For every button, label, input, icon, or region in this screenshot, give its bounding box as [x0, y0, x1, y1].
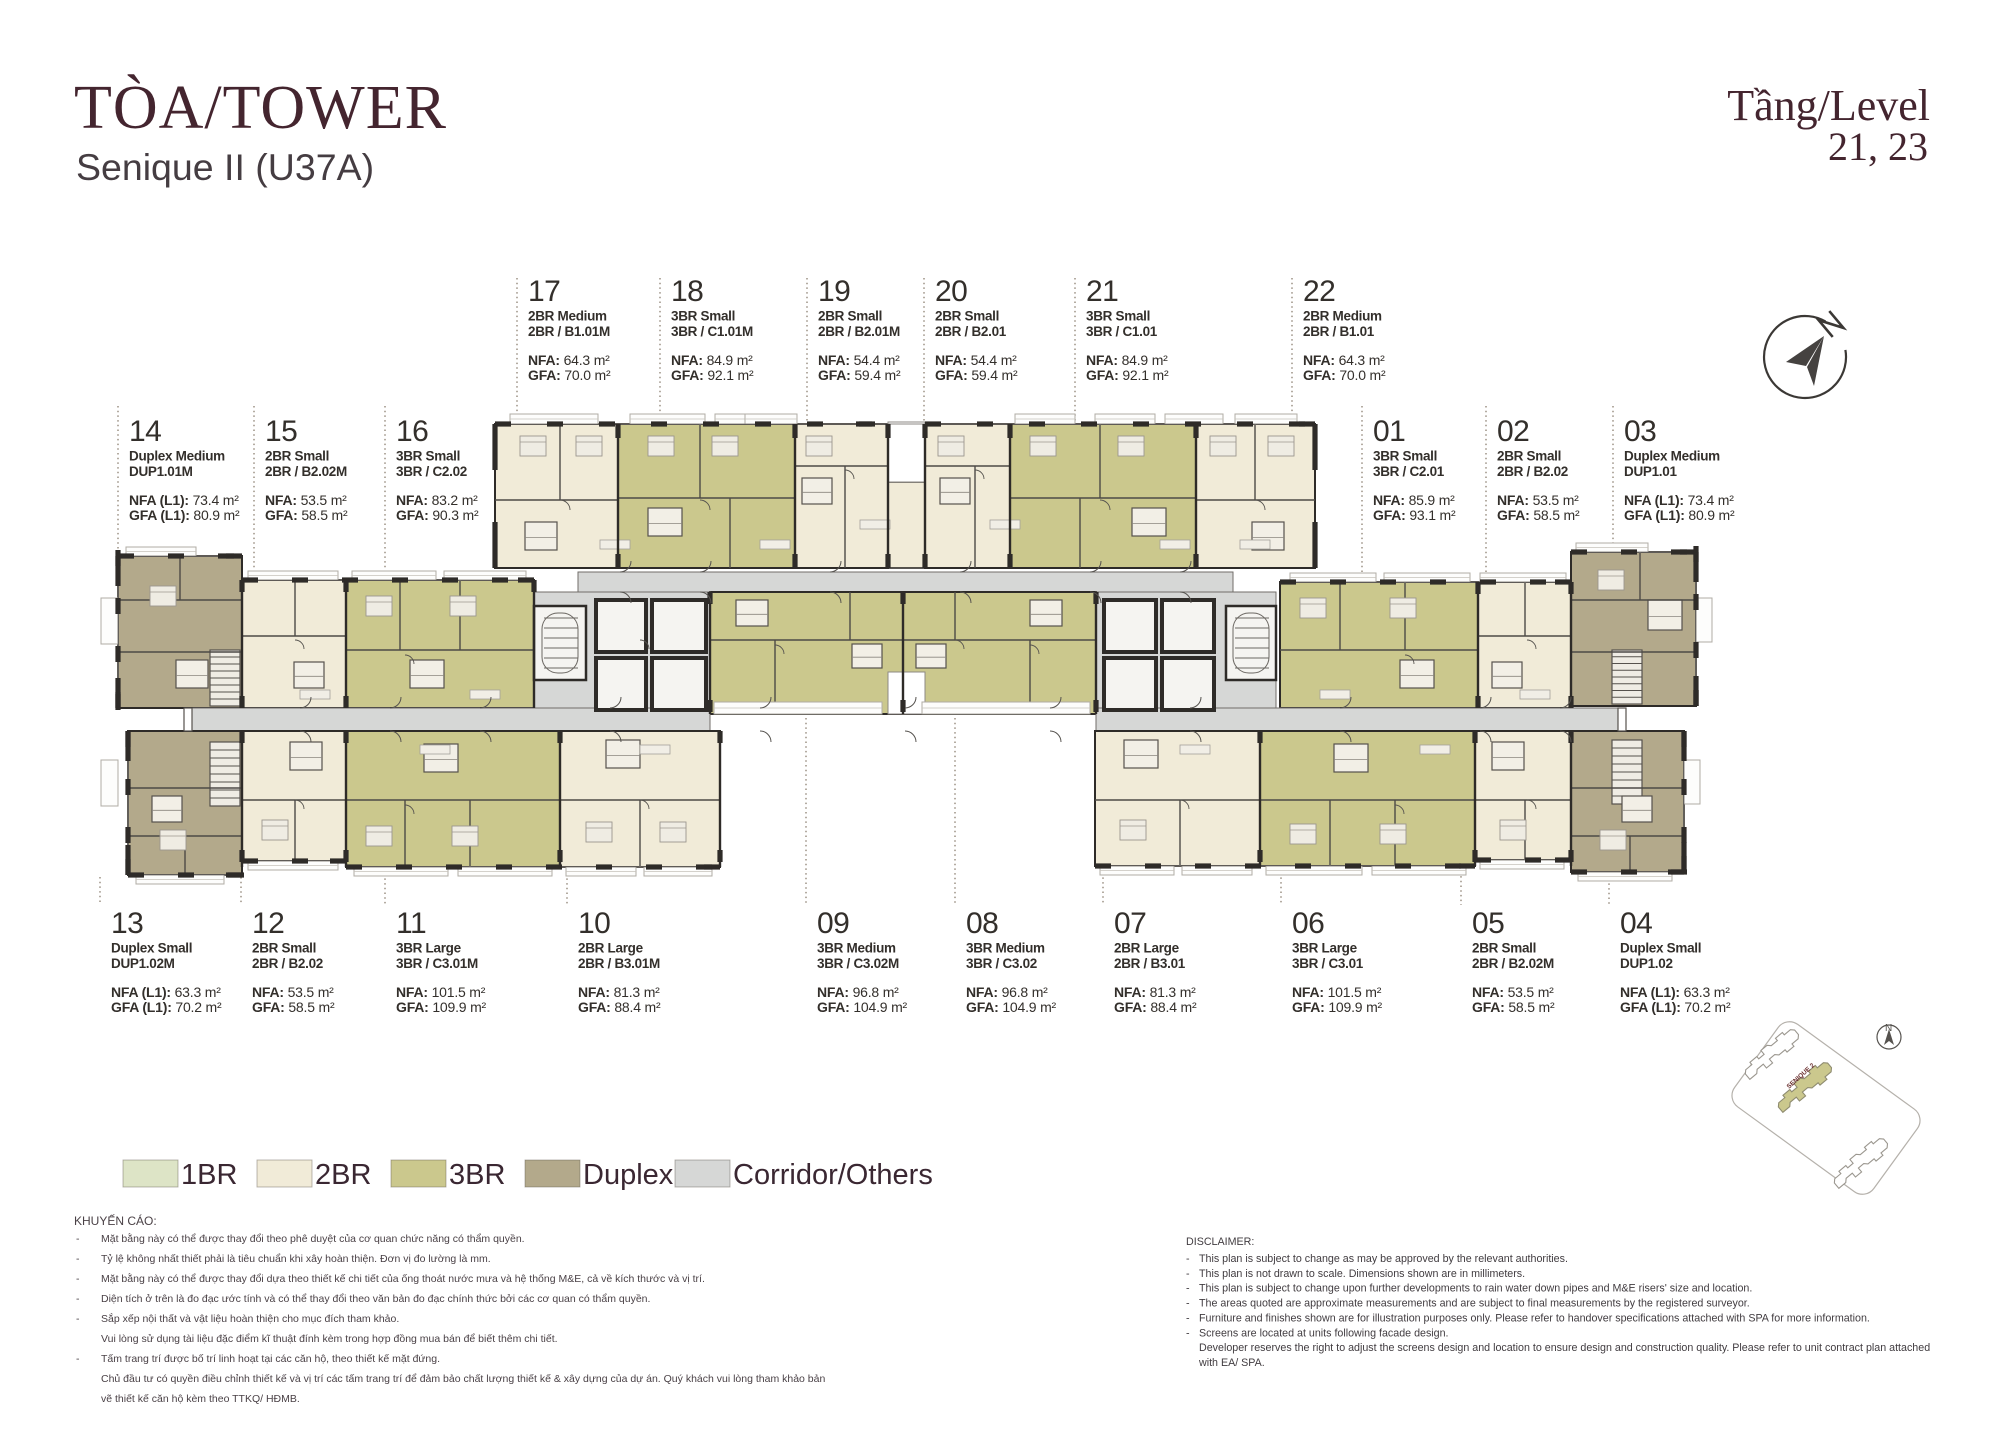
svg-text:Screens are located at units f: Screens are located at units following f…	[1199, 1327, 1449, 1339]
svg-text:NFA: 96.8 m²: NFA: 96.8 m²	[817, 984, 899, 1000]
svg-text:-: -	[76, 1273, 80, 1285]
svg-text:3BR / C1.01M: 3BR / C1.01M	[671, 324, 753, 339]
svg-text:2BR / B1.01M: 2BR / B1.01M	[528, 324, 610, 339]
svg-text:NFA (L1): 73.4 m²: NFA (L1): 73.4 m²	[1624, 492, 1734, 508]
svg-text:NFA: 96.8 m²: NFA: 96.8 m²	[966, 984, 1048, 1000]
svg-text:-: -	[1186, 1283, 1190, 1295]
svg-text:Tỷ lệ không nhất thiết phải là: Tỷ lệ không nhất thiết phải là tiêu chuẩ…	[101, 1253, 491, 1265]
svg-text:07: 07	[1114, 907, 1146, 940]
svg-text:20: 20	[935, 275, 967, 308]
svg-text:2BR / B2.02: 2BR / B2.02	[252, 956, 323, 971]
svg-text:vẽ thiết kế căn hộ kèm theo TT: vẽ thiết kế căn hộ kèm theo TTKQ/ HĐMB.	[101, 1393, 300, 1405]
svg-text:05: 05	[1472, 907, 1504, 940]
svg-text:GFA: 58.5 m²: GFA: 58.5 m²	[1497, 507, 1580, 523]
svg-text:Chủ đầu tư có quyền điều chỉnh: Chủ đầu tư có quyền điều chỉnh thiết kế …	[101, 1373, 825, 1385]
svg-text:2BR / B2.01: 2BR / B2.01	[935, 324, 1007, 339]
svg-text:Tấm trang trí được bố trí linh: Tấm trang trí được bố trí linh hoạt tại …	[101, 1353, 440, 1365]
svg-text:GFA: 58.5 m²: GFA: 58.5 m²	[252, 999, 335, 1015]
svg-text:GFA: 70.0 m²: GFA: 70.0 m²	[1303, 367, 1386, 383]
svg-text:Corridor/Others: Corridor/Others	[733, 1159, 933, 1191]
svg-text:GFA: 59.4 m²: GFA: 59.4 m²	[818, 367, 901, 383]
svg-text:NFA: 54.4 m²: NFA: 54.4 m²	[818, 352, 900, 368]
svg-text:3BR Small: 3BR Small	[1373, 449, 1437, 464]
svg-text:2BR Small: 2BR Small	[818, 309, 882, 324]
svg-text:Duplex Medium: Duplex Medium	[129, 449, 225, 464]
svg-text:The areas quoted are approxima: The areas quoted are approximate measure…	[1199, 1298, 1750, 1310]
svg-text:Vui lòng sử dụng tài liệu đặc: Vui lòng sử dụng tài liệu đặc điểm kĩ th…	[101, 1333, 558, 1345]
svg-text:18: 18	[671, 275, 703, 308]
svg-text:16: 16	[396, 415, 428, 448]
svg-text:-: -	[1186, 1298, 1190, 1310]
svg-text:Duplex Small: Duplex Small	[1620, 941, 1701, 956]
svg-text:3BR Small: 3BR Small	[1086, 309, 1150, 324]
svg-text:04: 04	[1620, 907, 1652, 940]
svg-text:2BR Small: 2BR Small	[935, 309, 999, 324]
svg-text:Tầng/Level: Tầng/Level	[1727, 81, 1930, 130]
svg-text:NFA: 53.5 m²: NFA: 53.5 m²	[1497, 492, 1579, 508]
svg-text:GFA: 88.4 m²: GFA: 88.4 m²	[578, 999, 661, 1015]
svg-text:08: 08	[966, 907, 998, 940]
svg-text:DUP1.01: DUP1.01	[1624, 464, 1677, 479]
svg-text:2BR Large: 2BR Large	[578, 941, 644, 956]
svg-text:GFA: 90.3 m²: GFA: 90.3 m²	[396, 507, 479, 523]
svg-text:NFA: 84.9 m²: NFA: 84.9 m²	[671, 352, 753, 368]
svg-text:3BR / C2.02: 3BR / C2.02	[396, 464, 467, 479]
svg-text:NFA: 81.3 m²: NFA: 81.3 m²	[578, 984, 660, 1000]
svg-text:GFA: 92.1 m²: GFA: 92.1 m²	[1086, 367, 1169, 383]
svg-text:3BR Small: 3BR Small	[671, 309, 735, 324]
svg-text:-: -	[1186, 1327, 1190, 1339]
svg-text:DUP1.01M: DUP1.01M	[129, 464, 193, 479]
svg-text:3BR / C3.01M: 3BR / C3.01M	[396, 956, 478, 971]
svg-text:This plan is not drawn to scal: This plan is not drawn to scale. Dimensi…	[1199, 1268, 1525, 1280]
svg-text:2BR: 2BR	[315, 1159, 371, 1191]
svg-text:GFA: 58.5 m²: GFA: 58.5 m²	[265, 507, 348, 523]
svg-text:02: 02	[1497, 415, 1529, 448]
svg-text:This plan is subject to change: This plan is subject to change as may be…	[1199, 1253, 1568, 1265]
svg-text:06: 06	[1292, 907, 1324, 940]
svg-text:3BR / C1.01: 3BR / C1.01	[1086, 324, 1158, 339]
svg-text:2BR Medium: 2BR Medium	[528, 309, 607, 324]
svg-text:2BR / B1.01: 2BR / B1.01	[1303, 324, 1375, 339]
svg-text:GFA (L1): 80.9 m²: GFA (L1): 80.9 m²	[1624, 507, 1735, 523]
svg-text:12: 12	[252, 907, 284, 940]
svg-text:NFA: 101.5 m²: NFA: 101.5 m²	[1292, 984, 1382, 1000]
svg-text:2BR / B2.02M: 2BR / B2.02M	[1472, 956, 1554, 971]
svg-text:GFA: 93.1 m²: GFA: 93.1 m²	[1373, 507, 1456, 523]
svg-text:3BR / C3.01: 3BR / C3.01	[1292, 956, 1364, 971]
svg-text:Developer reserves the right t: Developer reserves the right to adjust t…	[1199, 1342, 1930, 1354]
svg-text:NFA: 81.3 m²: NFA: 81.3 m²	[1114, 984, 1196, 1000]
svg-text:11: 11	[396, 907, 426, 940]
svg-text:NFA: 84.9 m²: NFA: 84.9 m²	[1086, 352, 1168, 368]
svg-text:TÒA/TOWER: TÒA/TOWER	[74, 74, 447, 142]
svg-text:14: 14	[129, 415, 161, 448]
svg-text:2BR / B2.02M: 2BR / B2.02M	[265, 464, 347, 479]
svg-text:Duplex Medium: Duplex Medium	[1624, 449, 1720, 464]
svg-text:2BR Small: 2BR Small	[252, 941, 316, 956]
svg-text:-: -	[76, 1313, 80, 1325]
svg-text:2BR / B3.01M: 2BR / B3.01M	[578, 956, 660, 971]
svg-text:1BR: 1BR	[181, 1159, 237, 1191]
svg-text:Duplex Small: Duplex Small	[111, 941, 192, 956]
svg-text:Furniture and finishes shown a: Furniture and finishes shown are for ill…	[1199, 1312, 1870, 1324]
svg-text:3BR / C2.01: 3BR / C2.01	[1373, 464, 1445, 479]
svg-text:Diện tích ở trên là đo đạc ước: Diện tích ở trên là đo đạc ước tính và c…	[101, 1293, 650, 1305]
svg-text:3BR Medium: 3BR Medium	[966, 941, 1045, 956]
svg-text:2BR Medium: 2BR Medium	[1303, 309, 1382, 324]
svg-text:GFA: 109.9 m²: GFA: 109.9 m²	[1292, 999, 1383, 1015]
svg-text:GFA (L1): 70.2 m²: GFA (L1): 70.2 m²	[111, 999, 222, 1015]
svg-text:NFA (L1): 73.4 m²: NFA (L1): 73.4 m²	[129, 492, 239, 508]
svg-text:09: 09	[817, 907, 849, 940]
svg-text:NFA: 83.2 m²: NFA: 83.2 m²	[396, 492, 478, 508]
svg-text:DUP1.02: DUP1.02	[1620, 956, 1673, 971]
svg-text:GFA (L1): 70.2 m²: GFA (L1): 70.2 m²	[1620, 999, 1731, 1015]
svg-text:-: -	[1186, 1268, 1190, 1280]
svg-text:3BR: 3BR	[449, 1159, 505, 1191]
svg-text:GFA (L1): 80.9 m²: GFA (L1): 80.9 m²	[129, 507, 240, 523]
svg-text:3BR / C3.02M: 3BR / C3.02M	[817, 956, 899, 971]
svg-text:-: -	[76, 1233, 80, 1245]
svg-text:17: 17	[528, 275, 560, 308]
svg-text:2BR Large: 2BR Large	[1114, 941, 1180, 956]
svg-text:13: 13	[111, 907, 143, 940]
svg-text:GFA: 70.0 m²: GFA: 70.0 m²	[528, 367, 611, 383]
svg-text:2BR Small: 2BR Small	[1472, 941, 1536, 956]
svg-text:3BR Small: 3BR Small	[396, 449, 460, 464]
svg-text:NFA: 85.9 m²: NFA: 85.9 m²	[1373, 492, 1455, 508]
svg-text:Mặt bằng này có thể được thay: Mặt bằng này có thể được thay đổi dựa th…	[101, 1272, 705, 1285]
svg-text:-: -	[1186, 1253, 1190, 1265]
svg-text:2BR / B2.02: 2BR / B2.02	[1497, 464, 1568, 479]
svg-text:KHUYẾN CÁO:: KHUYẾN CÁO:	[74, 1213, 157, 1228]
svg-text:NFA (L1): 63.3 m²: NFA (L1): 63.3 m²	[1620, 984, 1730, 1000]
svg-text:-: -	[76, 1353, 80, 1365]
svg-text:with EA/ SPA.: with EA/ SPA.	[1198, 1357, 1265, 1369]
svg-text:GFA: 92.1 m²: GFA: 92.1 m²	[671, 367, 754, 383]
svg-text:21, 23: 21, 23	[1828, 124, 1928, 169]
svg-text:NFA: 101.5 m²: NFA: 101.5 m²	[396, 984, 486, 1000]
svg-text:-: -	[76, 1293, 80, 1305]
svg-text:10: 10	[578, 907, 610, 940]
svg-text:03: 03	[1624, 415, 1656, 448]
svg-text:Sắp xếp nội thất và vật liệu h: Sắp xếp nội thất và vật liệu hoàn thiện …	[101, 1312, 399, 1325]
svg-text:NFA: 64.3 m²: NFA: 64.3 m²	[528, 352, 610, 368]
svg-text:3BR Large: 3BR Large	[396, 941, 462, 956]
svg-text:3BR Medium: 3BR Medium	[817, 941, 896, 956]
svg-text:-: -	[76, 1253, 80, 1265]
svg-text:15: 15	[265, 415, 297, 448]
svg-text:2BR Small: 2BR Small	[265, 449, 329, 464]
svg-text:This plan is subject to change: This plan is subject to change upon furt…	[1199, 1283, 1752, 1295]
svg-text:NFA: 54.4 m²: NFA: 54.4 m²	[935, 352, 1017, 368]
svg-text:01: 01	[1373, 415, 1405, 448]
svg-text:3BR / C3.02: 3BR / C3.02	[966, 956, 1037, 971]
svg-text:NFA: 53.5 m²: NFA: 53.5 m²	[265, 492, 347, 508]
svg-text:GFA: 58.5 m²: GFA: 58.5 m²	[1472, 999, 1555, 1015]
svg-text:Duplex: Duplex	[583, 1159, 674, 1191]
svg-text:GFA: 104.9 m²: GFA: 104.9 m²	[966, 999, 1057, 1015]
svg-text:NFA: 53.5 m²: NFA: 53.5 m²	[1472, 984, 1554, 1000]
svg-text:2BR Small: 2BR Small	[1497, 449, 1561, 464]
svg-text:NFA: 53.5 m²: NFA: 53.5 m²	[252, 984, 334, 1000]
svg-text:GFA: 88.4 m²: GFA: 88.4 m²	[1114, 999, 1197, 1015]
svg-text:GFA: 59.4 m²: GFA: 59.4 m²	[935, 367, 1018, 383]
svg-text:Senique II (U37A): Senique II (U37A)	[76, 146, 374, 188]
svg-text:NFA: 64.3 m²: NFA: 64.3 m²	[1303, 352, 1385, 368]
svg-text:21: 21	[1086, 275, 1118, 308]
svg-text:22: 22	[1303, 275, 1335, 308]
svg-text:3BR Large: 3BR Large	[1292, 941, 1358, 956]
svg-text:DUP1.02M: DUP1.02M	[111, 956, 175, 971]
svg-text:GFA: 104.9 m²: GFA: 104.9 m²	[817, 999, 908, 1015]
svg-text:-: -	[1186, 1312, 1190, 1324]
svg-text:2BR / B2.01M: 2BR / B2.01M	[818, 324, 900, 339]
svg-text:NFA (L1): 63.3 m²: NFA (L1): 63.3 m²	[111, 984, 221, 1000]
svg-text:Mặt bằng này có thể được thay: Mặt bằng này có thể được thay đổi theo p…	[101, 1232, 525, 1245]
svg-text:DISCLAIMER:: DISCLAIMER:	[1186, 1236, 1254, 1248]
svg-text:19: 19	[818, 275, 850, 308]
svg-text:2BR / B3.01: 2BR / B3.01	[1114, 956, 1186, 971]
svg-text:GFA: 109.9 m²: GFA: 109.9 m²	[396, 999, 487, 1015]
